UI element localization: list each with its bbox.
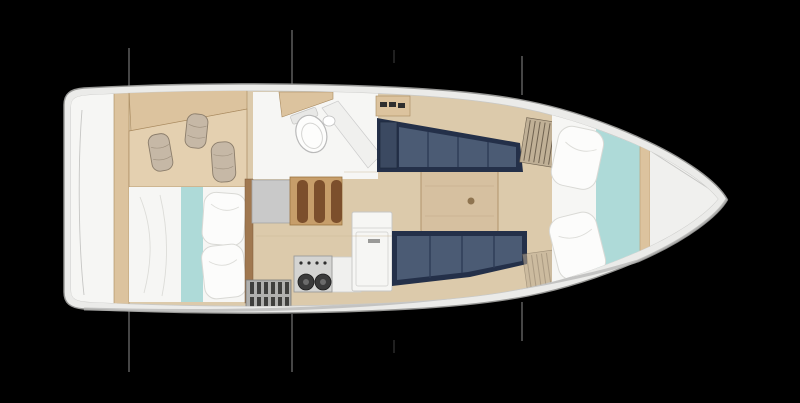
step-tread-2 — [314, 180, 325, 223]
deck-shelf-fittings — [376, 96, 410, 116]
galley-stove — [294, 256, 332, 292]
refrigerator-cabinet — [352, 212, 392, 291]
fender-2 — [184, 113, 208, 149]
stern-bulkhead-plank — [114, 91, 129, 309]
transom-platform — [69, 94, 117, 306]
screenshot-root — [0, 0, 800, 403]
fender-3 — [211, 141, 237, 183]
companionway-steps — [290, 177, 342, 225]
head-sink — [323, 116, 335, 126]
aft-berth-pillow-2 — [200, 243, 247, 300]
port-settee-back-cushion — [380, 122, 397, 168]
fridge-handle — [368, 239, 380, 243]
yacht-floorplan — [0, 0, 800, 403]
aft-berth-runner — [181, 187, 203, 302]
v-berth-foot-rim — [640, 146, 650, 260]
table-pedestal — [468, 198, 475, 205]
step-tread-1 — [297, 180, 308, 223]
shower-seat-box — [252, 180, 292, 223]
saloon-table — [421, 168, 498, 233]
step-tread-3 — [331, 180, 342, 223]
aft-berth-pillow-1 — [201, 192, 247, 247]
